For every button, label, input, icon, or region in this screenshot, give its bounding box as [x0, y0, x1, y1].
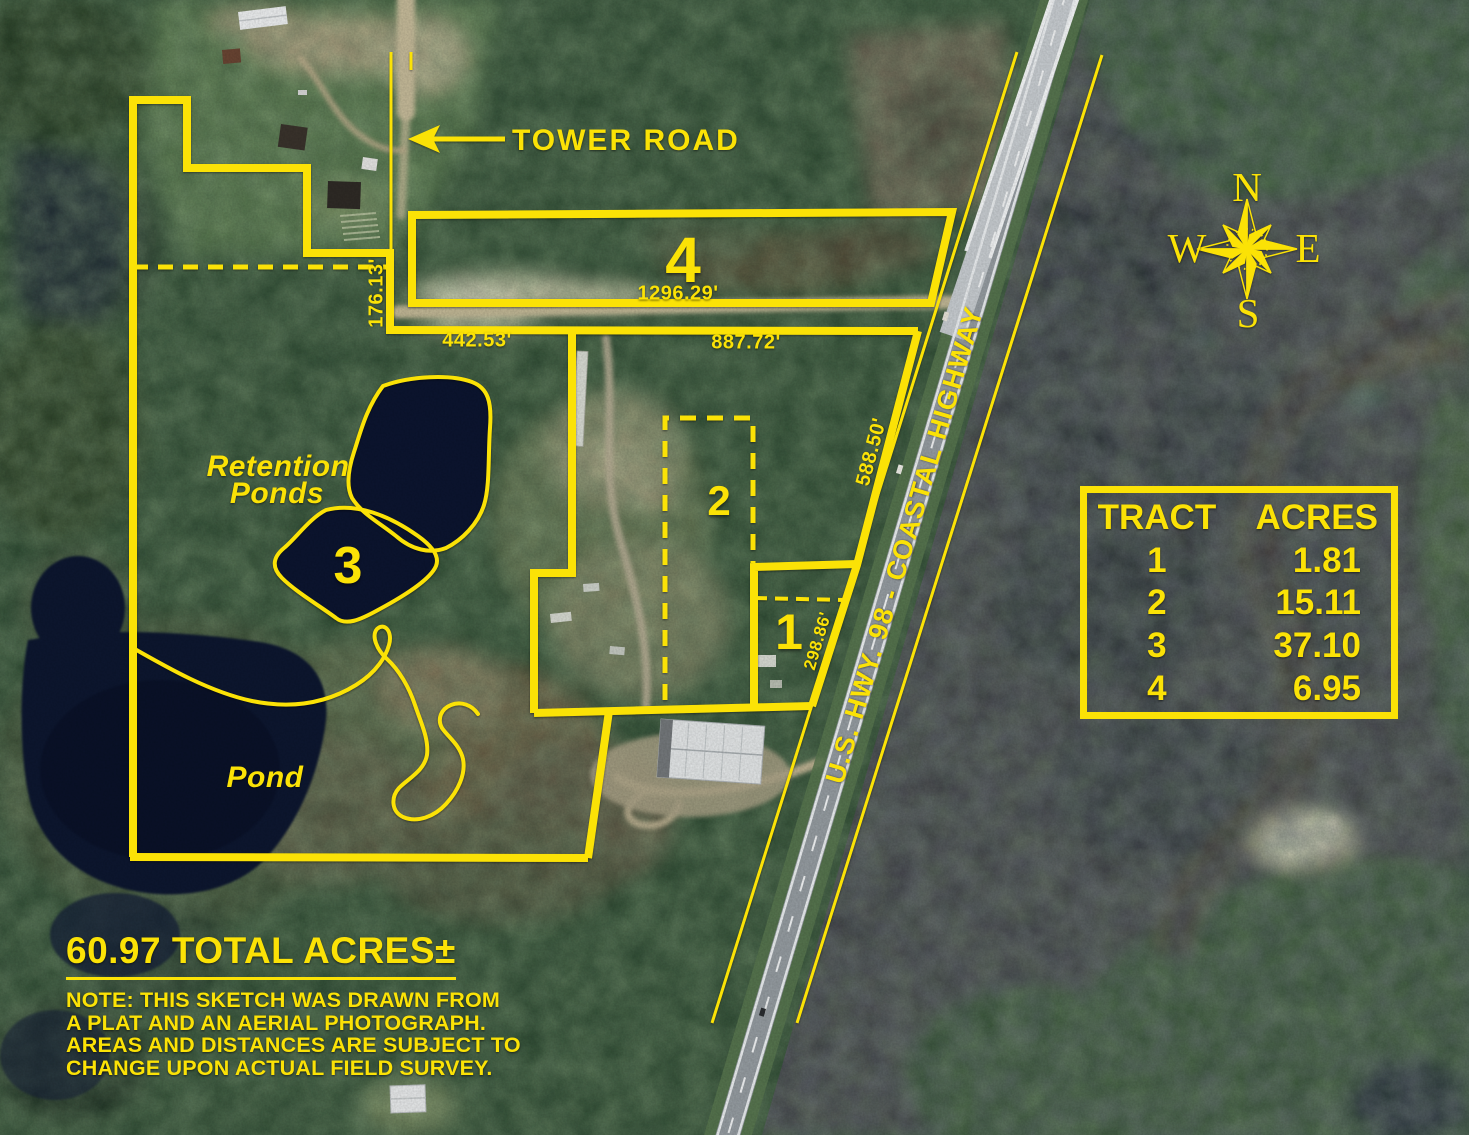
table-row: 2 15.11 — [1087, 582, 1391, 625]
tract-cell: 1 — [1087, 541, 1227, 581]
measurement-887: 887.72' — [711, 332, 780, 355]
acres-cell: 1.81 — [1227, 541, 1391, 581]
acres-cell: 15.11 — [1227, 583, 1391, 623]
tract-cell: 2 — [1087, 583, 1227, 623]
note-line: NOTE: THIS SKETCH WAS DRAWN FROM — [66, 989, 521, 1012]
acres-cell: 37.10 — [1227, 626, 1391, 666]
acreage-table-header: TRACT ACRES — [1087, 497, 1391, 540]
note-line: CHANGE UPON ACTUAL FIELD SURVEY. — [66, 1057, 521, 1080]
compass-north-label: N — [1232, 163, 1262, 211]
tract2-dashed-outline — [665, 418, 753, 700]
measurement-442: 442.53' — [442, 330, 511, 353]
summary-block: 60.97 TOTAL ACRES± NOTE: THIS SKETCH WAS… — [66, 930, 521, 1079]
tower-road-arrow-icon — [408, 125, 505, 153]
tract-cell: 4 — [1087, 669, 1227, 709]
table-row: 4 6.95 — [1087, 667, 1391, 710]
compass-south-label: S — [1237, 289, 1260, 337]
compass-west-label: W — [1168, 224, 1207, 272]
measurement-1296: 1296.29' — [637, 283, 718, 306]
acreage-table: TRACT ACRES 1 1.81 2 15.11 3 37.10 4 6.9… — [1080, 486, 1398, 719]
compass-rose-icon — [1197, 199, 1297, 299]
tract1-number: 1 — [775, 603, 803, 661]
tract-cell: 3 — [1087, 626, 1227, 666]
tower-road-label: TOWER ROAD — [512, 124, 740, 158]
tract3-number: 3 — [334, 536, 363, 596]
tract1-dashed-line — [754, 598, 845, 600]
acres-column-header: ACRES — [1227, 498, 1391, 538]
retention-ponds-label-line2: Ponds — [230, 477, 324, 511]
acres-cell: 6.95 — [1227, 669, 1391, 709]
tract2-number: 2 — [707, 477, 730, 525]
total-acres-title: 60.97 TOTAL ACRES± — [66, 930, 456, 980]
compass-east-label: E — [1295, 224, 1320, 272]
note-line: A PLAT AND AN AERIAL PHOTOGRAPH. — [66, 1012, 521, 1035]
table-row: 1 1.81 — [1087, 540, 1391, 583]
tract-column-header: TRACT — [1087, 498, 1227, 538]
tract1-outline — [754, 564, 857, 710]
pond-wetland-line — [133, 627, 478, 820]
note-line: AREAS AND DISTANCES ARE SUBJECT TO — [66, 1034, 521, 1057]
table-row: 3 37.10 — [1087, 625, 1391, 668]
right-of-way-lines — [391, 52, 1102, 1023]
survey-note: NOTE: THIS SKETCH WAS DRAWN FROM A PLAT … — [66, 989, 521, 1079]
pond-label: Pond — [227, 761, 304, 795]
survey-sketch-map: TOWER ROAD U.S. HWY. 98 - COASTAL HIGHWA… — [0, 0, 1469, 1135]
measurement-tower-frontage: 176.13' — [366, 258, 389, 327]
